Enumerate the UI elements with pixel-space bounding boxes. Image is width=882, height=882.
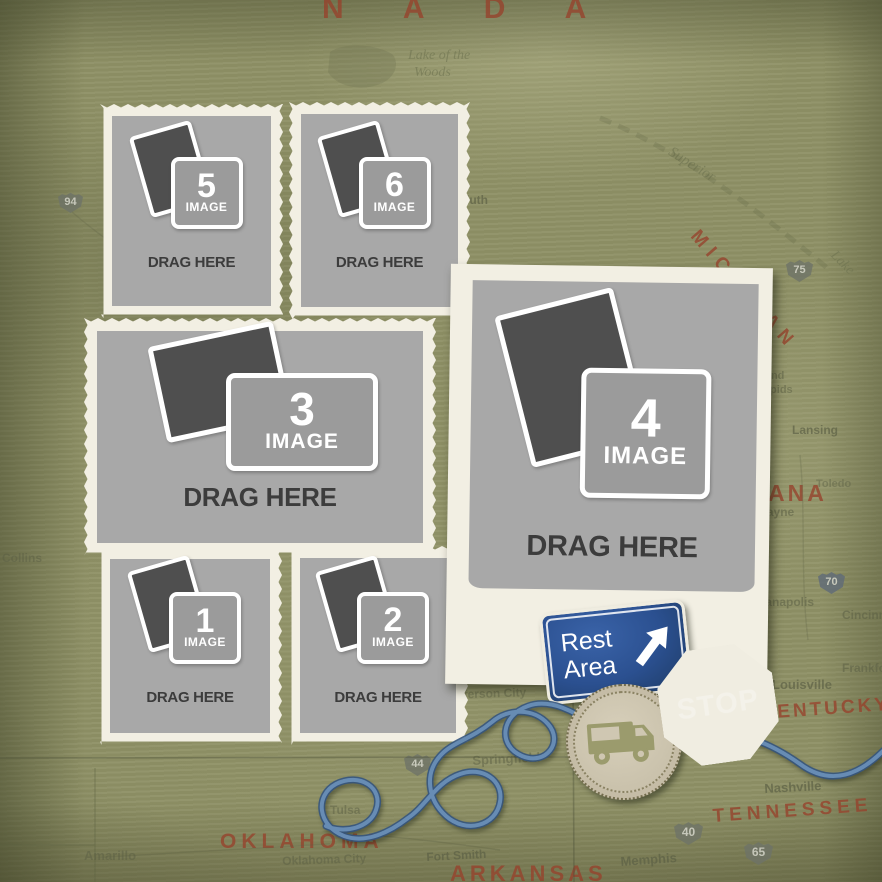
image-label: IMAGE bbox=[265, 430, 339, 454]
photo-placeholder-2[interactable]: 2 IMAGE DRAG HERE bbox=[288, 546, 468, 745]
photo-drop-zone[interactable]: 5 IMAGE DRAG HERE bbox=[112, 116, 271, 306]
photo-drop-zone[interactable]: 3 IMAGE DRAG HERE bbox=[97, 331, 423, 543]
drag-here-label: DRAG HERE bbox=[526, 530, 698, 565]
lake-of-the-woods-shape bbox=[328, 45, 396, 87]
rv-camper-icon bbox=[583, 709, 665, 774]
photo-drop-zone[interactable]: 1 IMAGE DRAG HERE bbox=[110, 559, 270, 733]
photo-front-icon: 5 IMAGE bbox=[171, 157, 243, 229]
image-label: IMAGE bbox=[603, 442, 687, 471]
rest-area-text: Rest Area bbox=[559, 625, 617, 684]
image-label: IMAGE bbox=[372, 635, 414, 649]
photo-drop-zone[interactable]: 6 IMAGE DRAG HERE bbox=[301, 114, 458, 307]
photo-stack-icon: 5 IMAGE bbox=[133, 125, 251, 247]
photo-front-icon: 6 IMAGE bbox=[359, 157, 431, 229]
photo-placeholder-6[interactable]: 6 IMAGE DRAG HERE bbox=[289, 102, 470, 319]
photo-stack-icon: 6 IMAGE bbox=[321, 125, 439, 247]
photo-stack-icon: 4 IMAGE bbox=[501, 293, 726, 522]
drag-here-label: DRAG HERE bbox=[146, 689, 233, 706]
placeholder-number: 2 bbox=[384, 606, 403, 635]
scrapbook-template-page: N A D A MICHIGAN ANA KENTUCKY TENNESSEE … bbox=[0, 0, 882, 882]
photo-front-icon: 4 IMAGE bbox=[580, 368, 712, 500]
photo-drop-zone[interactable]: 2 IMAGE DRAG HERE bbox=[300, 558, 456, 733]
photo-placeholder-1[interactable]: 1 IMAGE DRAG HERE bbox=[98, 547, 282, 745]
image-label: IMAGE bbox=[374, 200, 416, 214]
drag-here-label: DRAG HERE bbox=[336, 254, 423, 271]
road-lines bbox=[95, 836, 500, 858]
photo-front-icon: 1 IMAGE bbox=[169, 592, 241, 664]
placeholder-number: 4 bbox=[630, 396, 661, 442]
lake-shoreline-dashes bbox=[600, 118, 832, 272]
drag-here-label: DRAG HERE bbox=[183, 482, 336, 513]
photo-drop-zone[interactable]: 4 IMAGE DRAG HERE bbox=[468, 280, 758, 592]
up-right-arrow-icon bbox=[623, 622, 676, 675]
photo-placeholder-3[interactable]: 3 IMAGE DRAG HERE bbox=[84, 318, 436, 556]
map-fold-horizontal bbox=[0, 757, 572, 758]
drag-here-label: DRAG HERE bbox=[334, 689, 421, 706]
photo-stack-icon: 3 IMAGE bbox=[138, 331, 382, 473]
image-label: IMAGE bbox=[186, 200, 228, 214]
placeholder-number: 3 bbox=[289, 390, 315, 429]
placeholder-number: 1 bbox=[196, 607, 215, 636]
photo-placeholder-5[interactable]: 5 IMAGE DRAG HERE bbox=[100, 104, 283, 318]
photo-front-icon: 2 IMAGE bbox=[357, 592, 429, 664]
image-label: IMAGE bbox=[184, 635, 226, 649]
state-border-lines bbox=[0, 768, 95, 882]
placeholder-number: 5 bbox=[197, 172, 216, 201]
photo-stack-icon: 2 IMAGE bbox=[319, 560, 437, 682]
photo-front-icon: 3 IMAGE bbox=[226, 373, 378, 471]
photo-stack-icon: 1 IMAGE bbox=[131, 560, 249, 682]
rest-area-line2: Area bbox=[562, 652, 617, 684]
stop-label: STOP bbox=[675, 683, 761, 727]
drag-here-label: DRAG HERE bbox=[148, 254, 235, 271]
placeholder-number: 6 bbox=[385, 171, 404, 200]
